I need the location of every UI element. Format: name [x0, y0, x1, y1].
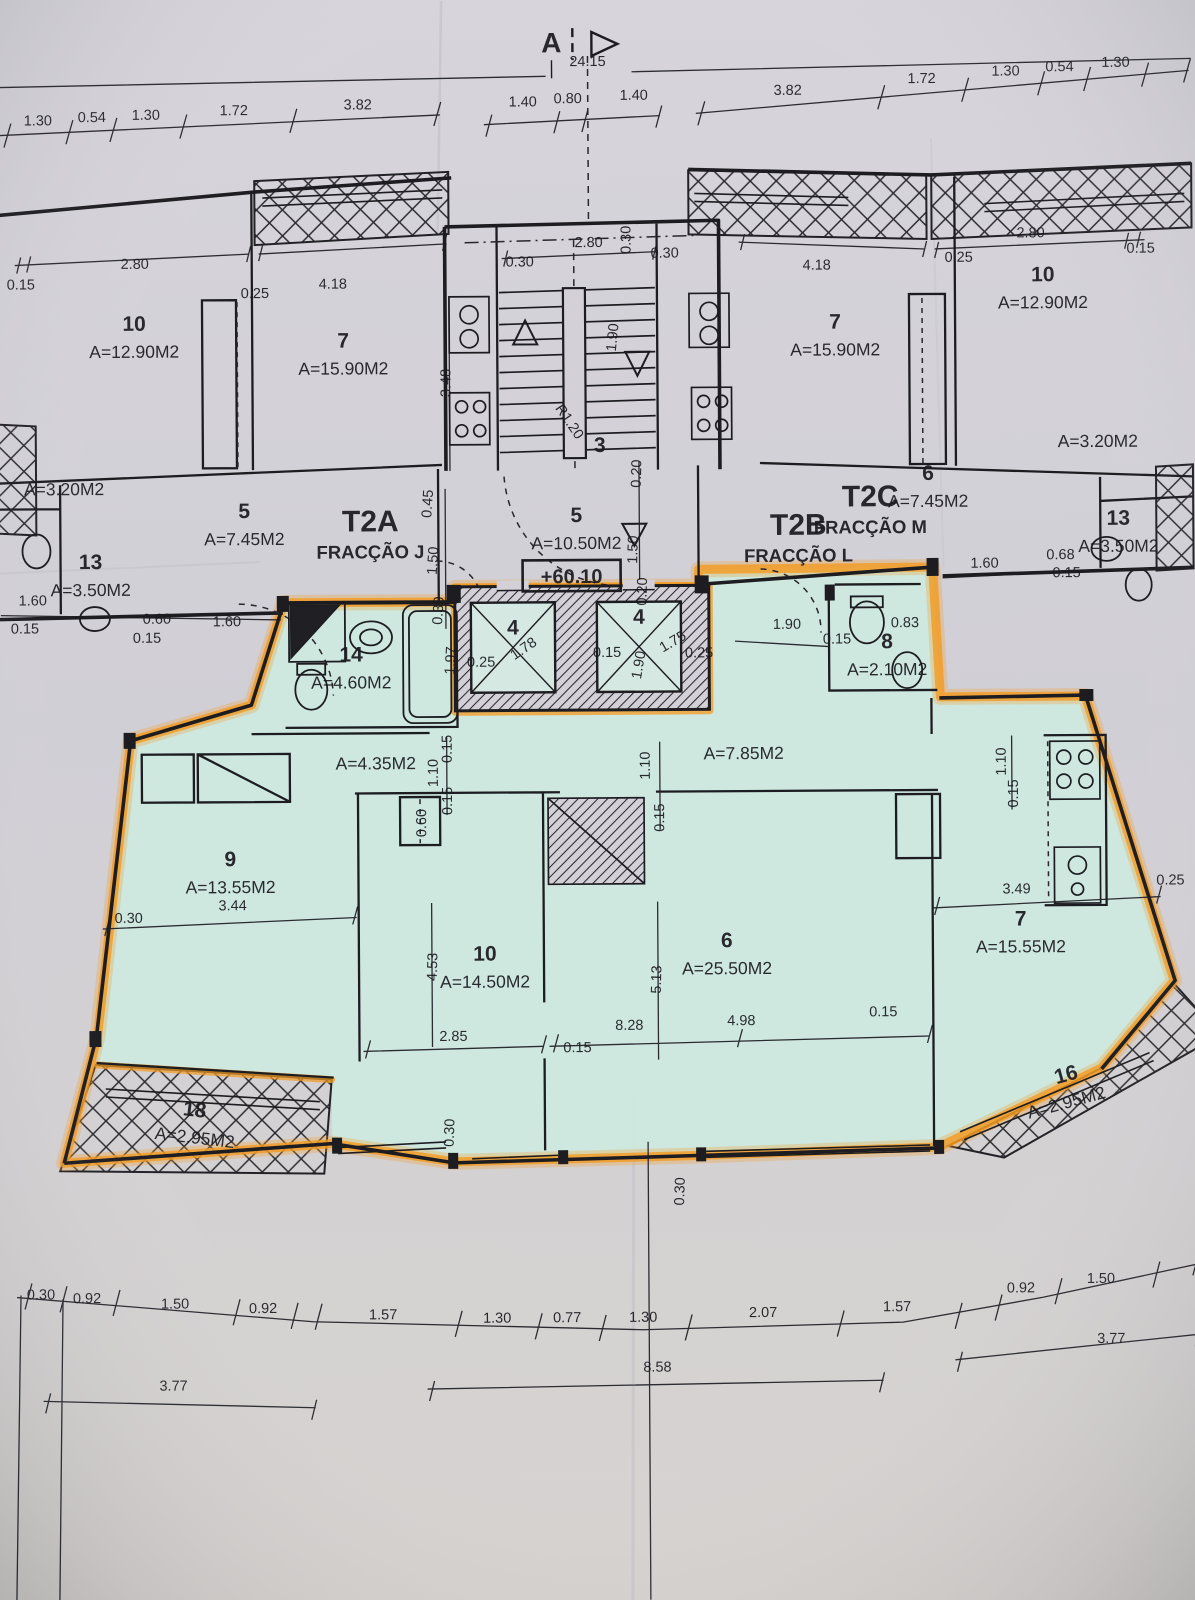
dimension-label: 0.15 — [440, 787, 456, 815]
room-number-label: 8 — [881, 630, 893, 653]
room-number-label: 9 — [224, 848, 236, 871]
dimension-label: 0.30 — [618, 226, 634, 254]
dimension-label: 1.40 — [509, 94, 537, 110]
dimension-label: 1.57 — [883, 1299, 911, 1315]
dimension-label: 0.30 — [650, 245, 678, 261]
room-number-label: 13 — [1107, 507, 1130, 530]
room-number-label: 10 — [1031, 263, 1054, 286]
room-area-label: A=4.35M2 — [336, 753, 416, 773]
room-number-label: 18 — [182, 1097, 208, 1123]
dimension-label: 0.15 — [652, 803, 668, 831]
room-area-label: A=15.90M2 — [790, 339, 880, 360]
room-area-label: A=7.45M2 — [204, 529, 284, 549]
dimension-label: 3.77 — [159, 1379, 187, 1395]
dimension-label: 1.57 — [369, 1307, 397, 1323]
room-area-label: A=7.45M2 — [888, 491, 968, 511]
room-number-label: 7 — [829, 311, 841, 334]
room-number-label: 13 — [79, 551, 102, 574]
dimension-label: 0.15 — [1126, 241, 1154, 257]
dimension-label: 1.50 — [625, 535, 642, 564]
dimension-label: 2.80 — [574, 235, 602, 251]
dimension-label: 1.60 — [213, 614, 241, 630]
dimension-label: 1.50 — [1087, 1271, 1115, 1287]
dimension-label: 1.50 — [161, 1297, 189, 1313]
room-number-label: 3 — [594, 434, 606, 457]
dimension-label: 2.80 — [1016, 225, 1044, 241]
floor-plan-drawing: A +60.10 24.151.300.541.301.723.821.400.… — [0, 0, 1195, 1600]
dimension-label: 0.92 — [249, 1301, 277, 1317]
dimension-label: 1.40 — [620, 88, 648, 104]
dimension-label: 5.13 — [649, 965, 666, 994]
room-number-label: 5 — [238, 500, 250, 523]
dimension-label: 0.54 — [1045, 59, 1073, 75]
level-value: +60.10 — [541, 566, 603, 588]
dimension-label: 0.30 — [430, 596, 448, 625]
dimension-label: 1.72 — [220, 103, 248, 119]
dimension-label: 1.30 — [483, 1311, 511, 1327]
dimension-label: 3.49 — [1002, 881, 1030, 897]
dimension-label: 0.20 — [634, 577, 651, 606]
room-number-label: 5 — [570, 504, 582, 527]
dimension-label: 0.15 — [823, 631, 851, 647]
room-area-label: A=3.20M2 — [1058, 431, 1138, 451]
dimension-label: 0.15 — [1052, 565, 1080, 581]
dimension-label: 1.90 — [604, 323, 623, 353]
room-area-label: A=10.50M2 — [531, 533, 621, 554]
room-area-label: A=13.55M2 — [185, 877, 275, 898]
room-area-label: A=3.20M2 — [24, 479, 104, 499]
fraction-code-label: T2C — [842, 480, 899, 513]
dimension-label: 0.25 — [945, 250, 973, 266]
dimension-label: 0.30 — [442, 1118, 459, 1147]
dimension-label: 4.18 — [803, 258, 831, 274]
room-number-label: 7 — [1015, 907, 1027, 930]
room-number-label: 7 — [337, 330, 349, 353]
fraction-name-label: FRACÇÃO M — [814, 516, 927, 538]
dimension-label: 1.97 — [442, 646, 460, 675]
room-area-label: A=12.90M2 — [998, 292, 1088, 313]
fraction-code-label: T2A — [342, 505, 399, 538]
room-area-label: A=3.50M2 — [51, 580, 131, 600]
room-area-label: A=15.90M2 — [298, 358, 388, 379]
dimension-label: 2.85 — [439, 1029, 467, 1045]
room-number-label: 4 — [507, 616, 519, 639]
section-letter: A — [541, 27, 561, 58]
room-area-label: A=2.10M2 — [847, 659, 927, 679]
dimension-label: 1.30 — [132, 108, 160, 124]
dimension-label: 3.82 — [344, 97, 372, 113]
dimension-label: 2.07 — [749, 1305, 777, 1321]
dimension-label: 0.15 — [7, 277, 35, 293]
room-area-label: A=7.85M2 — [704, 743, 784, 763]
dimension-label: 1.90 — [773, 617, 801, 633]
room-area-label: A=14.50M2 — [440, 971, 530, 992]
room-number-label: 6 — [922, 462, 934, 485]
dimension-label: 8.58 — [643, 1360, 671, 1376]
fraction-name-label: FRACÇÃO J — [316, 541, 424, 563]
dimension-label: 0.30 — [115, 911, 143, 927]
room-area-label: A=12.90M2 — [89, 342, 179, 363]
room-area-label: A=25.50M2 — [682, 958, 772, 979]
dimension-label: 1.30 — [1101, 55, 1129, 71]
dimension-label: 1.30 — [629, 1310, 657, 1326]
dimension-label: 0.15 — [593, 645, 621, 661]
dimension-label: 1.10 — [638, 752, 654, 780]
dimension-label: 24.15 — [569, 54, 605, 70]
dimension-label: 3.82 — [774, 83, 802, 99]
fraction-name-label: FRACÇÃO L — [744, 544, 853, 566]
room-number-label: 14 — [339, 643, 363, 666]
dimension-label: 0.30 — [27, 1287, 55, 1303]
dimension-label: 0.92 — [1007, 1280, 1035, 1296]
dimension-label: 0.25 — [467, 655, 495, 671]
dimension-label: 4.53 — [425, 953, 442, 982]
dimension-label: 3.77 — [1097, 1331, 1125, 1347]
dimension-label: 0.80 — [554, 91, 582, 107]
room-area-label: A=15.55M2 — [976, 936, 1066, 957]
floor-plan-photo: A +60.10 24.151.300.541.301.723.821.400.… — [0, 0, 1195, 1600]
dimension-label: 1.50 — [425, 546, 443, 575]
room-area-label: A=3.50M2 — [1078, 536, 1158, 556]
dimension-label: 0.83 — [891, 615, 919, 631]
dimension-label: 0.25 — [1156, 872, 1184, 888]
dimension-label: 0.30 — [506, 254, 534, 270]
dimension-label: 1.60 — [970, 556, 998, 572]
dimension-label: 3.48 — [438, 369, 454, 397]
dimension-label: 0.60 — [143, 612, 171, 628]
dimension-label: 2.80 — [121, 257, 149, 273]
dimension-label: 0.54 — [78, 110, 106, 126]
dimension-label: 0.25 — [685, 645, 713, 661]
dimension-label: 0.15 — [869, 1004, 897, 1020]
dimension-label: 1.72 — [907, 71, 935, 87]
dimension-label: 0.15 — [11, 621, 39, 637]
dimension-label: 0.20 — [629, 459, 646, 488]
dimension-label: 0.15 — [440, 735, 456, 763]
dimension-label: 0.45 — [419, 489, 437, 518]
dimension-label: 0.15 — [1006, 779, 1022, 807]
dimension-label: 0.15 — [133, 631, 161, 647]
dimension-label: 1.30 — [24, 113, 52, 129]
dimension-label: 0.60 — [414, 809, 430, 837]
room-number-label: 10 — [473, 943, 496, 966]
room-area-label: A=4.60M2 — [311, 672, 391, 692]
dimension-label: 1.60 — [19, 593, 47, 609]
dimension-label: 0.68 — [1046, 547, 1074, 563]
room-number-label: 10 — [122, 313, 145, 336]
dimension-label: 8.28 — [615, 1018, 643, 1034]
dimension-label: 0.92 — [73, 1291, 101, 1307]
dimension-label: 0.25 — [241, 286, 269, 302]
dimension-label: 0.77 — [553, 1310, 581, 1326]
room-number-label: 4 — [633, 606, 645, 629]
dimension-label: 3.44 — [218, 898, 246, 914]
dimension-label: 0.30 — [672, 1177, 689, 1206]
dimension-label: 1.10 — [994, 747, 1010, 775]
dimension-label: 1.30 — [991, 63, 1019, 79]
dimension-label: 4.18 — [319, 277, 347, 293]
dimension-label: 0.15 — [563, 1040, 591, 1056]
room-number-label: 6 — [721, 929, 733, 952]
dimension-label: 4.98 — [727, 1013, 755, 1029]
